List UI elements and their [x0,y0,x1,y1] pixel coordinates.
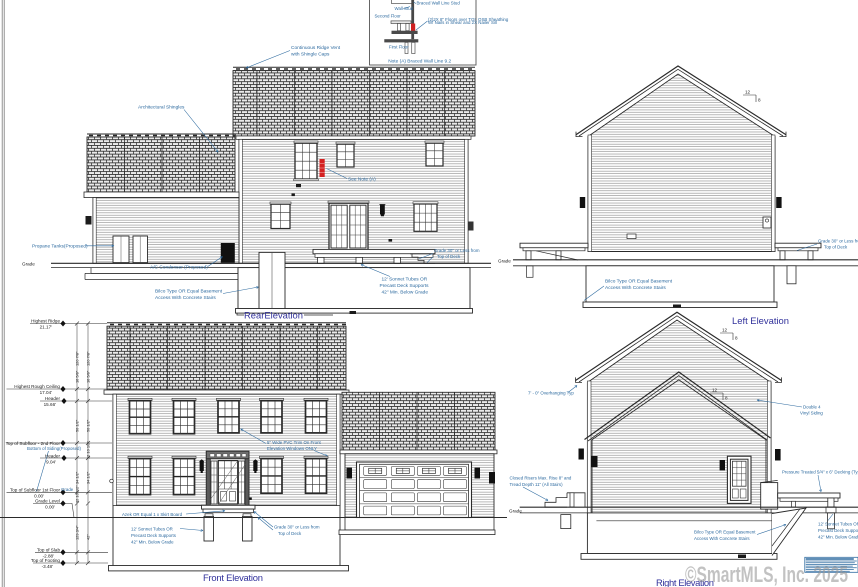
svg-text:12: 12 [712,388,718,393]
svg-text:15.66': 15.66' [44,402,56,407]
svg-text:-3.48': -3.48' [42,564,53,569]
svg-text:Highest Ridge: Highest Ridge [31,318,60,323]
svg-text:Double 4: Double 4 [803,405,821,410]
svg-text:Bilco Type OR Equal Basement: Bilco Type OR Equal Basement [605,279,673,285]
svg-text:A/C Condenser (Proposed): A/C Condenser (Proposed) [150,265,208,271]
svg-text:Access With Concrete Stairs: Access With Concrete Stairs [694,536,750,541]
svg-text:0.00': 0.00' [45,504,55,509]
svg-text:Propane Tanks(Proposed): Propane Tanks(Proposed) [32,244,88,250]
svg-text:120 7/8": 120 7/8" [75,351,80,366]
svg-text:50 1/2": 50 1/2" [86,419,91,432]
svg-text:120 7/8": 120 7/8" [86,351,91,366]
svg-text:50 1/2": 50 1/2" [75,419,80,432]
svg-text:42" Min. Below Grade: 42" Min. Below Grade [131,539,174,544]
svg-text:Pressure Treated 5/4" x 6" Dec: Pressure Treated 5/4" x 6" Decking (Typ.… [782,470,858,475]
svg-text:Bilco Type OR Equal Basement: Bilco Type OR Equal Basement [155,289,223,295]
svg-text:16 5/8": 16 5/8" [86,370,91,383]
svg-text:Grade: Grade [509,509,522,514]
svg-text:8: 8 [735,336,738,341]
svg-text:Precast Deck Supports: Precast Deck Supports [818,528,858,533]
svg-text:Highest Rough Ceiling: Highest Rough Ceiling [14,384,60,389]
svg-text:21.17': 21.17' [40,324,52,329]
svg-text:34 1/2": 34 1/2" [75,471,80,484]
svg-text:Closed Risers Max. Rise 8" and: Closed Risers Max. Rise 8" and [510,476,572,481]
svg-text:Grade: Grade [61,487,74,492]
svg-text:Note (A) Braced Wall Line 9.2: Note (A) Braced Wall Line 9.2 [388,59,451,65]
svg-text:129 3/4": 129 3/4" [75,525,80,540]
svg-text:Top of Subfloor 1st Floor: Top of Subfloor 1st Floor [10,487,61,492]
svg-text:12: 12 [722,328,728,333]
svg-text:12' Sonnet Tubes OR: 12' Sonnet Tubes OR [131,527,173,532]
svg-text:Grade: Grade [498,258,511,263]
svg-text:Bottom of Siding(Proposed): Bottom of Siding(Proposed) [27,446,81,451]
svg-text:16 5/8": 16 5/8" [75,370,80,383]
svg-text:Top of Deck: Top of Deck [824,245,848,250]
svg-text:12 10 1/2": 12 10 1/2" [86,441,91,459]
svg-text:Precast Deck Supports: Precast Deck Supports [131,533,177,538]
svg-text:Top of Footing: Top of Footing [31,558,61,563]
svg-text:7' - 0" Overhanging Typ: 7' - 0" Overhanging Typ [528,391,574,396]
svg-text:Top of Deck: Top of Deck [278,531,302,536]
svg-text:Precast Deck Supports: Precast Deck Supports [380,283,430,289]
svg-text:Elevation Windows ONLY: Elevation Windows ONLY [267,446,317,451]
svg-text:Grade: Grade [22,262,35,267]
svg-text:Bilco Type OR Equal Basement: Bilco Type OR Equal Basement [694,530,756,535]
svg-text:with Shingle Caps: with Shingle Caps [291,51,330,57]
svg-text:Top of Slab: Top of Slab [37,547,60,552]
svg-text:17.04': 17.04' [40,390,52,395]
svg-text:34 1/2": 34 1/2" [86,471,91,484]
svg-text:Grade 30" or Less from: Grade 30" or Less from [818,239,858,244]
svg-text:Vinyl Siding: Vinyl Siding [800,411,823,416]
svg-text:Access With Concrete Stairs: Access With Concrete Stairs [605,285,666,291]
svg-text:12' Sonnet Tubes OR: 12' Sonnet Tubes OR [382,277,428,283]
svg-text:42" Min. Below Grade: 42" Min. Below Grade [818,534,858,539]
svg-text:Continuous Ridge Vent: Continuous Ridge Vent [291,45,341,51]
svg-text:5" Wide PVC Trim On Front: 5" Wide PVC Trim On Front [267,440,322,445]
svg-text:42" Min. Below Grade: 42" Min. Below Grade [382,289,429,295]
svg-text:Grade 30" or Less from: Grade 30" or Less from [274,525,320,530]
svg-text:Braced Wall Line Stud: Braced Wall Line Stud [417,1,461,6]
svg-text:Access With Concrete Stairs: Access With Concrete Stairs [155,295,216,301]
svg-text:Second Floor: Second Floor [375,14,402,19]
svg-text:See Note (A): See Note (A) [348,177,376,183]
svg-text:12' Sonnet Tubes OR: 12' Sonnet Tubes OR [818,522,858,527]
svg-text:Grade 30" or Less from: Grade 30" or Less from [434,248,480,253]
svg-text:8: 8 [725,396,728,401]
svg-text:Header: Header [45,453,61,458]
svg-text:8: 8 [758,98,761,103]
svg-text:12: 12 [745,90,751,95]
svg-text:Azek OR Equal 1 x Skirt Board: Azek OR Equal 1 x Skirt Board [122,512,183,517]
svg-text:42": 42" [86,534,91,540]
svg-text:9.04': 9.04' [46,459,56,464]
svg-text:Grade Level: Grade Level [35,498,60,503]
svg-text:First Floor: First Floor [389,45,409,50]
svg-text:Tread Depth 11" (All Stairs): Tread Depth 11" (All Stairs) [510,482,564,487]
svg-text:RearElevation: RearElevation [244,310,303,321]
svg-text:Architectural Shingles: Architectural Shingles [138,105,185,111]
svg-text:W/ Nails in Shear and 2X Naile: W/ Nails in Shear and 2X Nailer Sill [428,20,497,25]
svg-text:Left Elevation: Left Elevation [732,315,789,326]
svg-text:©SmartMLS, Inc. 2025: ©SmartMLS, Inc. 2025 [685,562,848,587]
svg-text:12 10 1/2": 12 10 1/2" [75,485,80,503]
svg-text:Front Elevation: Front Elevation [203,572,263,583]
svg-text:Top of Deck: Top of Deck [437,254,461,259]
svg-text:Header: Header [45,396,61,401]
